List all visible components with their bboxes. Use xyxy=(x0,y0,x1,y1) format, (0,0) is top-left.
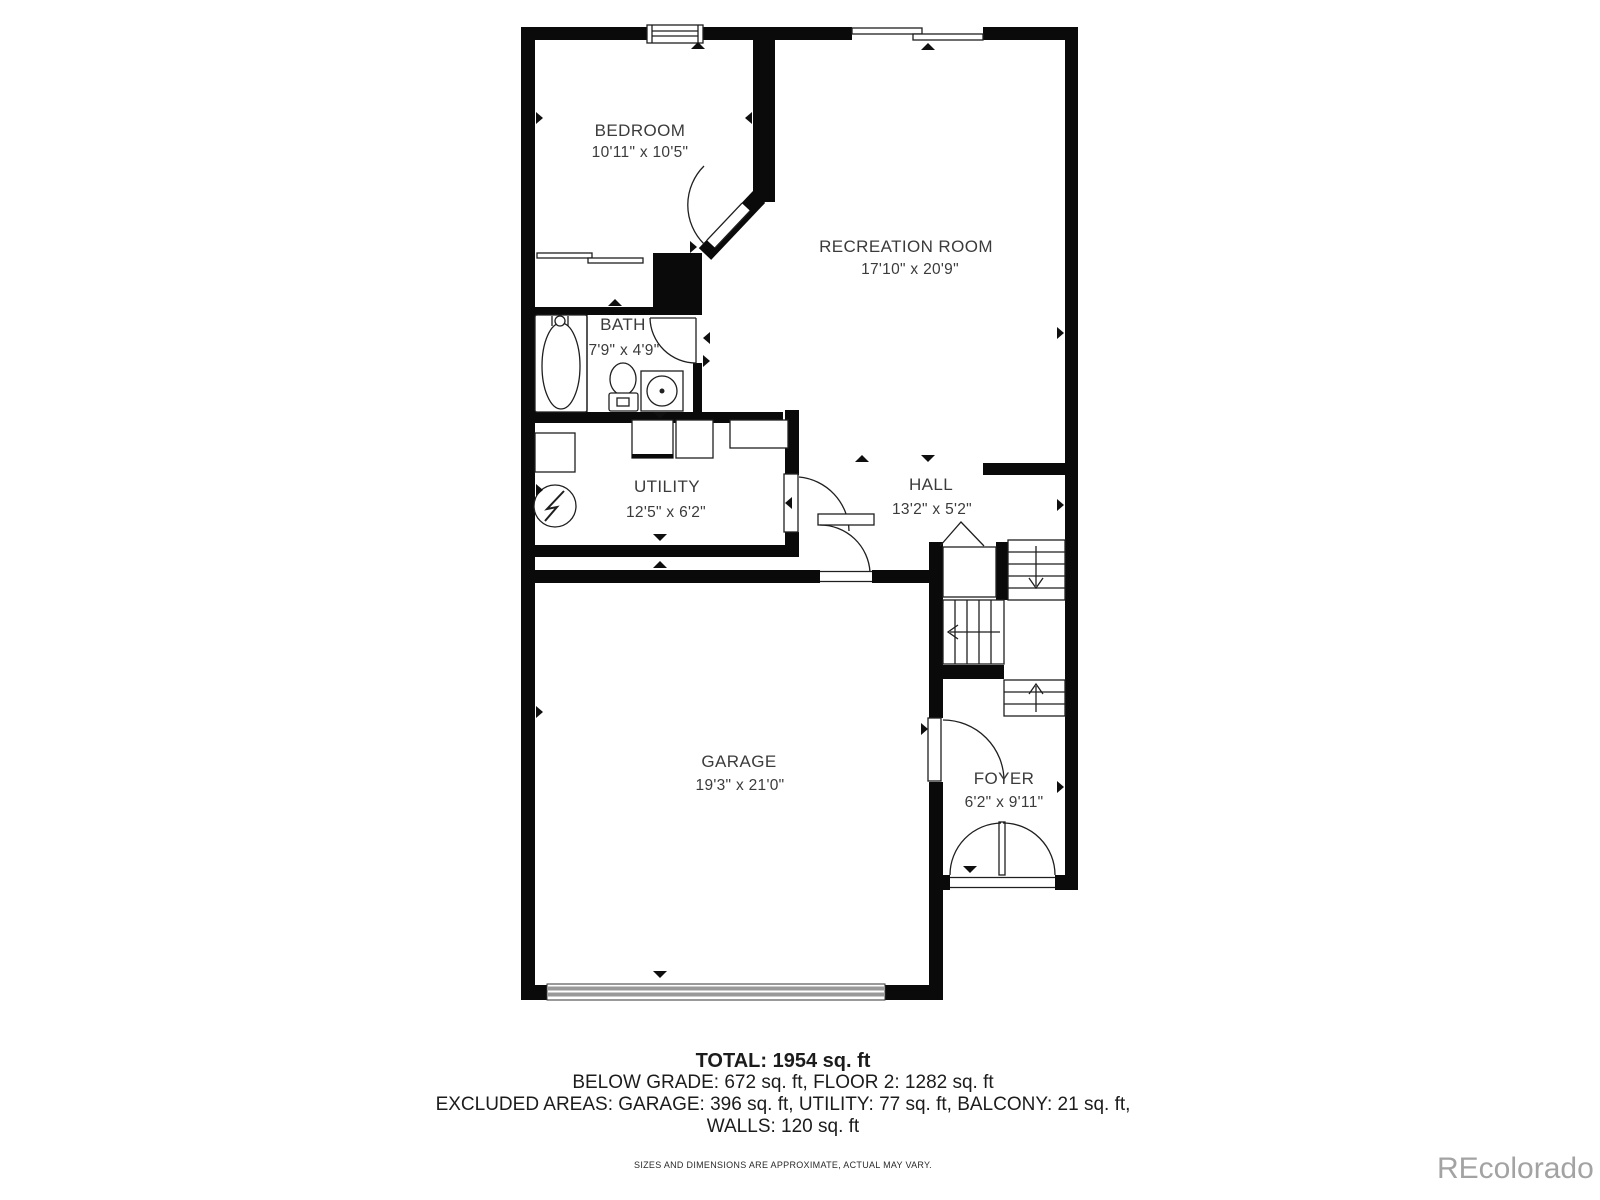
closet-sliding-door-icon xyxy=(537,253,643,263)
stair-landing xyxy=(943,547,996,597)
dimension-marker xyxy=(921,43,935,50)
dimension-marker xyxy=(608,299,622,306)
area-summary: TOTAL: 1954 sq. ft BELOW GRADE: 672 sq. … xyxy=(283,1050,1283,1170)
toilet-icon xyxy=(609,363,638,411)
hall-garage-door-icon xyxy=(818,514,874,583)
room-dims-bath: 7'9" x 4'9" xyxy=(588,342,659,359)
stairs-middle xyxy=(943,600,1004,664)
dimension-marker xyxy=(653,971,667,978)
excluded-areas: EXCLUDED AREAS: GARAGE: 396 sq. ft, UTIL… xyxy=(283,1094,1283,1116)
dimension-marker xyxy=(1057,499,1064,511)
room-dims-bedroom: 10'11" x 10'5" xyxy=(592,144,689,161)
dimension-marker xyxy=(963,866,977,873)
stairs-upper xyxy=(1008,540,1065,600)
dimension-marker xyxy=(653,561,667,568)
room-dims-foyer: 6'2" x 9'11" xyxy=(965,794,1044,811)
garage-door-icon xyxy=(547,984,885,1000)
bedroom-window-icon xyxy=(647,25,703,43)
watermark: REcolorado xyxy=(1437,1152,1594,1186)
total-area: TOTAL: 1954 sq. ft xyxy=(283,1050,1283,1072)
below-grade-area: BELOW GRADE: 672 sq. ft, FLOOR 2: 1282 s… xyxy=(283,1072,1283,1094)
room-label-garage: GARAGE xyxy=(701,752,776,771)
room-label-hall: HALL xyxy=(909,475,953,494)
room-labels: BEDROOM 10'11" x 10'5" RECREATION ROOM 1… xyxy=(588,121,1043,811)
washer-icon xyxy=(632,420,673,458)
room-label-bath: BATH xyxy=(600,315,646,334)
up-arrow-icon xyxy=(1029,684,1043,712)
entry-double-door-icon xyxy=(950,822,1055,889)
stairs-lower xyxy=(1004,680,1065,716)
disclaimer-text: SIZES AND DIMENSIONS ARE APPROXIMATE, AC… xyxy=(283,1160,1283,1170)
sink-icon xyxy=(641,371,683,411)
dimension-marker xyxy=(690,241,697,253)
dimension-marker xyxy=(745,112,752,124)
dryer-icon xyxy=(676,420,713,458)
room-label-bedroom: BEDROOM xyxy=(595,121,686,140)
dimension-marker xyxy=(921,723,928,735)
dimension-marker xyxy=(703,355,710,367)
room-label-recreation: RECREATION ROOM xyxy=(819,237,993,256)
shelf-icon xyxy=(730,420,788,448)
walls xyxy=(521,27,1078,1000)
dimension-markers xyxy=(536,42,1064,978)
water-heater-icon xyxy=(535,433,575,472)
dimension-marker xyxy=(653,534,667,541)
dimension-marker xyxy=(703,332,710,344)
left-arrow-icon xyxy=(948,625,1000,639)
bathtub-icon xyxy=(535,315,587,412)
sliding-door-icon xyxy=(852,28,983,40)
room-dims-utility: 12'5" x 6'2" xyxy=(626,504,706,521)
room-label-foyer: FOYER xyxy=(974,769,1035,788)
floorplan-svg: BEDROOM 10'11" x 10'5" RECREATION ROOM 1… xyxy=(0,0,1600,1200)
room-dims-hall: 13'2" x 5'2" xyxy=(892,501,972,518)
room-dims-recreation: 17'10" x 20'9" xyxy=(861,261,959,278)
dimension-marker xyxy=(1057,781,1064,793)
walls-area: WALLS: 120 sq. ft xyxy=(283,1116,1283,1138)
room-label-utility: UTILITY xyxy=(634,477,700,496)
dimension-marker xyxy=(536,112,543,124)
bedroom-door-icon xyxy=(688,166,750,248)
dimension-marker xyxy=(921,455,935,462)
stair-direction-triangle-icon xyxy=(940,522,984,546)
room-dims-garage: 19'3" x 21'0" xyxy=(696,777,785,794)
dimension-marker xyxy=(536,706,543,718)
dimension-marker xyxy=(1057,327,1064,339)
dimension-marker xyxy=(855,455,869,462)
